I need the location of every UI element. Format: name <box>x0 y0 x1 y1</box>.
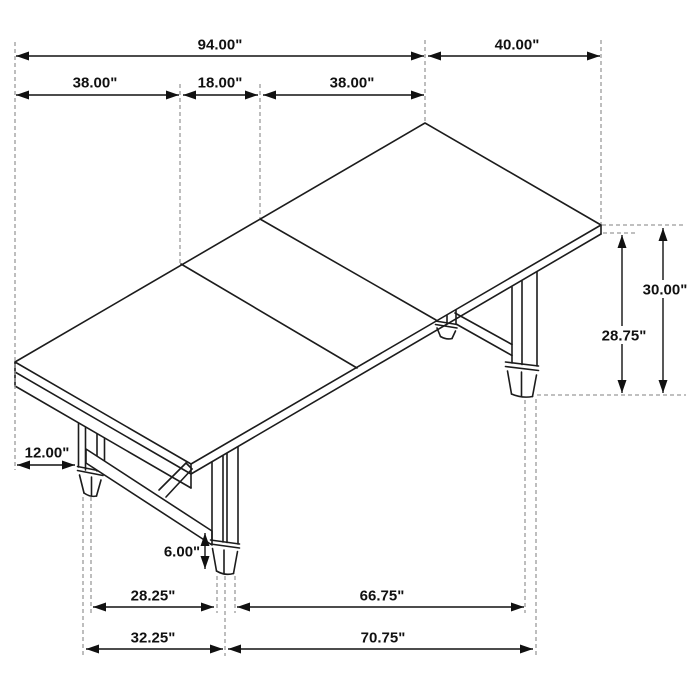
dimension-leg-span-inner: 66.75" <box>237 588 524 612</box>
arrowhead-icon <box>237 603 250 612</box>
arrowhead-icon <box>16 91 29 100</box>
rear-foot <box>84 493 97 496</box>
right-rear-foot <box>452 331 456 339</box>
arrowhead-icon <box>245 91 258 100</box>
arrowhead-icon <box>411 52 424 61</box>
arrowhead-icon <box>201 556 210 569</box>
front-foot-cap <box>211 540 240 544</box>
dimension-leg-span-outer: 70.75" <box>228 630 533 654</box>
arrowhead-icon <box>210 645 223 654</box>
dimension-label-leg-span-inner: 66.75" <box>360 588 405 605</box>
arrowhead-icon <box>62 461 75 470</box>
dimension-label-end-width: 40.00" <box>495 37 540 54</box>
table-top <box>15 123 601 488</box>
arrowhead-icon <box>183 91 196 100</box>
right-rear-foot <box>441 337 453 339</box>
front-foot <box>234 552 238 574</box>
dimension-top-overhang: 12.00" <box>17 445 75 470</box>
dimension-apron-clearance: 28.75" <box>595 235 653 393</box>
dimension-total-length: 94.00" <box>16 37 424 61</box>
arrowhead-icon <box>93 603 106 612</box>
dimension-table-height: 30.00" <box>636 228 694 393</box>
front-foot <box>217 571 234 574</box>
arrowhead-icon <box>16 52 29 61</box>
dimension-left-leaf-length: 38.00" <box>16 75 179 100</box>
table-dimension-diagram: 94.00"40.00"38.00"18.00"38.00"12.00"28.7… <box>0 0 700 700</box>
right-foot <box>533 375 537 397</box>
dimension-label-trestle-span-outer: 32.25" <box>131 630 176 647</box>
arrowhead-icon <box>618 380 627 393</box>
dimension-label-leg-span-outer: 70.75" <box>361 630 406 647</box>
arrowhead-icon <box>428 52 441 61</box>
dimension-label-apron-clearance: 28.75" <box>602 328 647 345</box>
dimension-label-stretcher-clearance: 6.00" <box>164 544 200 561</box>
front-foot-cap <box>211 544 240 548</box>
dimension-label-top-overhang: 12.00" <box>25 445 70 462</box>
right-foot-cap <box>506 367 539 371</box>
dimension-right-leaf-length: 38.00" <box>263 75 424 100</box>
arrowhead-icon <box>228 645 241 654</box>
arrowhead-icon <box>618 235 627 248</box>
dimension-label-left-leaf-length: 38.00" <box>73 75 118 92</box>
arrowhead-icon <box>587 52 600 61</box>
arrowhead-icon <box>17 461 30 470</box>
dimension-center-leaf-length: 18.00" <box>183 75 258 100</box>
dimension-trestle-span-inner: 28.25" <box>93 588 214 612</box>
arrowhead-icon <box>520 645 533 654</box>
arrowhead-icon <box>86 645 99 654</box>
dimension-label-table-height: 30.00" <box>643 282 688 299</box>
arrowhead-icon <box>201 603 214 612</box>
dimension-label-center-leaf-length: 18.00" <box>198 75 243 92</box>
tabletop-surface <box>15 123 601 464</box>
dimension-trestle-span-outer: 32.25" <box>86 630 223 654</box>
right-foot <box>508 371 512 394</box>
dimension-end-width: 40.00" <box>428 37 600 61</box>
front-foot <box>213 549 217 572</box>
arrowhead-icon <box>166 91 179 100</box>
dimension-drawing-page: { "drawing": { "subject": "dining-table-… <box>0 0 700 700</box>
arrowhead-icon <box>659 380 668 393</box>
rear-foot <box>80 475 85 493</box>
rear-foot <box>97 480 102 496</box>
arrowhead-icon <box>659 228 668 241</box>
dimension-label-right-leaf-length: 38.00" <box>330 75 375 92</box>
arrowhead-icon <box>411 91 424 100</box>
table-artwork <box>15 123 601 574</box>
dimension-label-total-length: 94.00" <box>198 37 243 54</box>
arrowhead-icon <box>263 91 276 100</box>
arrowhead-icon <box>511 603 524 612</box>
dimension-label-trestle-span-inner: 28.25" <box>131 588 176 605</box>
